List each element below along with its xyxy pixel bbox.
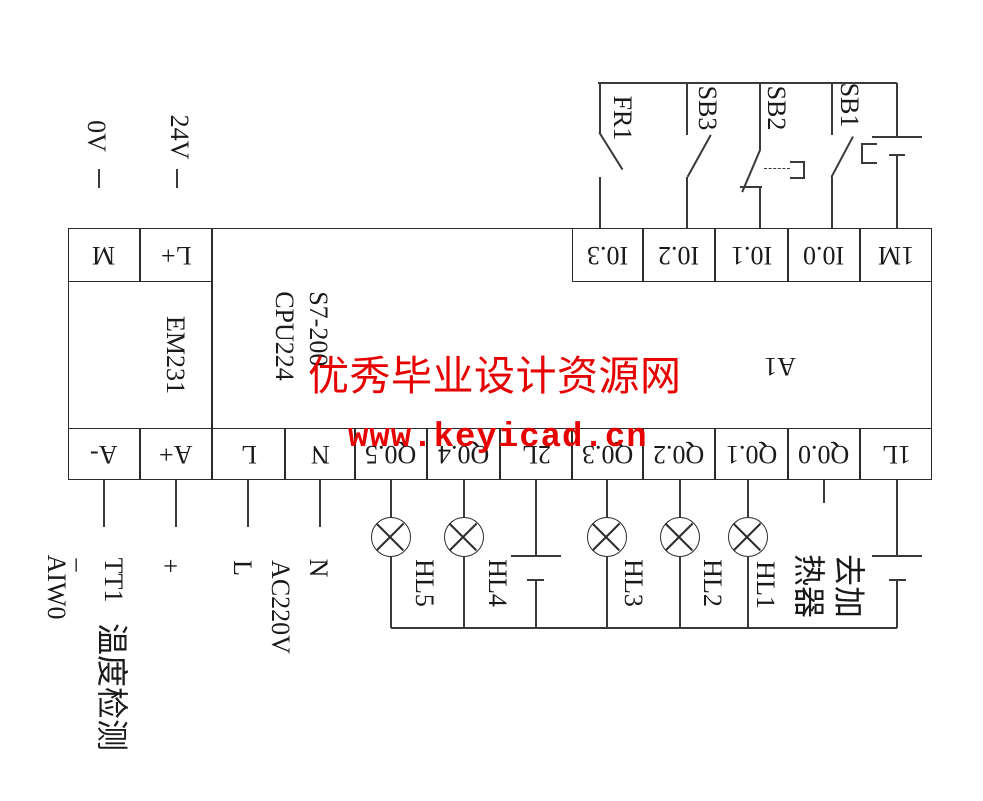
terminal-a-minus-label: A- <box>90 439 117 469</box>
wire-hl1-bus <box>747 557 749 628</box>
wire-sb3-lower <box>686 177 688 228</box>
wire-stub-0v <box>98 169 100 188</box>
sb2-actuator-stem <box>803 161 805 179</box>
sb1-actuator-bar2 <box>862 162 877 164</box>
wire-battery-top-upper <box>896 83 898 137</box>
terminal-a-minus: A- <box>68 428 140 480</box>
terminal-q0-0: Q0.0 <box>788 428 860 480</box>
label-ac-n: N <box>303 559 333 578</box>
battery-top-long-plate <box>872 136 922 138</box>
terminal-q0-2-label: Q0.2 <box>653 439 704 469</box>
wire-q00-heater-stub <box>823 480 825 503</box>
terminal-i0-0: I0.0 <box>788 228 860 282</box>
wire-a-minus <box>103 480 105 527</box>
terminal-i0-1: I0.1 <box>715 228 788 282</box>
wire-q03-lamp <box>606 480 608 517</box>
label-fr1: FR1 <box>607 96 637 141</box>
label-sb1: SB1 <box>834 83 864 128</box>
wire-hl4-bus <box>463 557 465 628</box>
wire-q04-lamp <box>463 480 465 517</box>
terminal-i0-3-label: I0.3 <box>587 240 628 270</box>
terminal-1m: 1M <box>860 228 932 282</box>
label-analog-minus: – <box>63 559 93 572</box>
terminal-l: L <box>212 428 285 480</box>
label-24v: 24V <box>164 115 194 160</box>
terminal-i0-3: I0.3 <box>572 228 643 282</box>
wire-hl2-bus <box>679 557 681 628</box>
label-ac-l: L <box>227 560 257 576</box>
wire-q01-lamp <box>747 480 749 517</box>
wire-hl3-bus <box>606 557 608 628</box>
label-sb2: SB2 <box>761 86 791 131</box>
lamp-hl5-icon <box>371 517 411 557</box>
plc-wiring-schematic: 0V 24V FR1 SB3 SB2 SB1 M L+ I0.3 I0.2 I0… <box>0 0 983 801</box>
wire-1l-battery-upper <box>896 480 898 556</box>
label-hl2: HL2 <box>697 559 727 607</box>
terminal-a-plus-label: A+ <box>159 439 192 469</box>
terminal-1m-label: 1M <box>878 240 914 270</box>
wire-sb3-upper <box>686 83 688 135</box>
terminal-i0-1-label: I0.1 <box>731 240 772 270</box>
terminal-l-label: L <box>241 439 257 469</box>
wire-output-bus <box>391 627 897 629</box>
label-em231: EM231 <box>160 316 190 394</box>
wire-2l-battery-lower <box>535 581 537 628</box>
terminal-1l-label: 1L <box>882 439 911 469</box>
contact-sb1-blade <box>830 136 853 177</box>
label-hl5: HL5 <box>409 559 439 607</box>
terminal-n-label: N <box>311 439 330 469</box>
wire-1l-battery-lower <box>896 581 898 628</box>
wire-battery-top-lower <box>896 156 898 228</box>
label-sb3: SB3 <box>692 86 722 131</box>
terminal-a-plus: A+ <box>140 428 212 480</box>
wire-2l-battery-upper <box>535 480 537 556</box>
label-cpu-model-line2: CPU224 <box>267 291 301 381</box>
sb1-actuator-bar1 <box>862 143 877 145</box>
terminal-i0-2-label: I0.2 <box>658 240 699 270</box>
terminal-l-plus-label: L+ <box>161 240 192 270</box>
lamp-hl3-icon <box>587 517 627 557</box>
label-ac220v: AC220V <box>265 560 295 654</box>
label-hl1: HL1 <box>750 561 780 609</box>
wire-sb1-upper <box>831 83 833 135</box>
battery-2l-long-plate <box>511 555 561 557</box>
sb2-mechanical-link <box>764 168 790 169</box>
wire-ac-n <box>319 480 321 527</box>
battery-1l-long-plate <box>872 555 922 557</box>
label-hl3: HL3 <box>618 559 648 607</box>
wire-sb1-lower <box>831 177 833 228</box>
lamp-hl2-icon <box>660 517 700 557</box>
terminal-q0-0-label: Q0.0 <box>798 439 849 469</box>
wire-a-plus <box>175 480 177 527</box>
wire-sb2-lower <box>759 187 761 228</box>
wire-ac-l <box>247 480 249 527</box>
terminal-q0-1-label: Q0.1 <box>726 439 777 469</box>
watermark-url: www.keyicad.cn <box>348 419 648 457</box>
label-tt1: TT1 <box>98 558 128 603</box>
terminal-1l: 1L <box>860 428 932 480</box>
wire-hl5-bus <box>390 557 392 628</box>
terminal-q0-1: Q0.1 <box>715 428 788 480</box>
watermark-text: 优秀毕业设计资源网 <box>308 342 682 402</box>
terminal-i0-2: I0.2 <box>643 228 715 282</box>
terminal-n: N <box>285 428 355 480</box>
terminal-q0-2: Q0.2 <box>643 428 715 480</box>
terminal-l-plus: L+ <box>140 228 212 282</box>
label-hl4: HL4 <box>482 559 512 607</box>
label-to-heater: 去加 热器 <box>789 554 869 618</box>
terminal-m-label: M <box>92 240 115 270</box>
label-unit-a1: A1 <box>764 351 796 381</box>
wire-q05-lamp <box>390 480 392 517</box>
contact-sb3-blade <box>687 134 712 177</box>
label-temperature-detection: 温度检测 <box>91 623 137 751</box>
wire-q02-lamp <box>679 480 681 517</box>
wire-fr1-lower <box>599 177 601 228</box>
terminal-m: M <box>68 228 140 282</box>
lamp-hl4-icon <box>444 517 484 557</box>
label-0v: 0V <box>81 120 111 152</box>
label-analog-plus: + <box>155 559 185 574</box>
label-to-heater-line2: 热器 <box>789 554 829 618</box>
lamp-hl1-icon <box>728 517 768 557</box>
label-to-heater-line1: 去加 <box>829 554 869 618</box>
wire-stub-24v <box>176 169 178 188</box>
terminal-i0-0-label: I0.0 <box>803 240 844 270</box>
wire-fr1-upper <box>599 83 601 133</box>
sb1-actuator-stem <box>861 143 863 164</box>
